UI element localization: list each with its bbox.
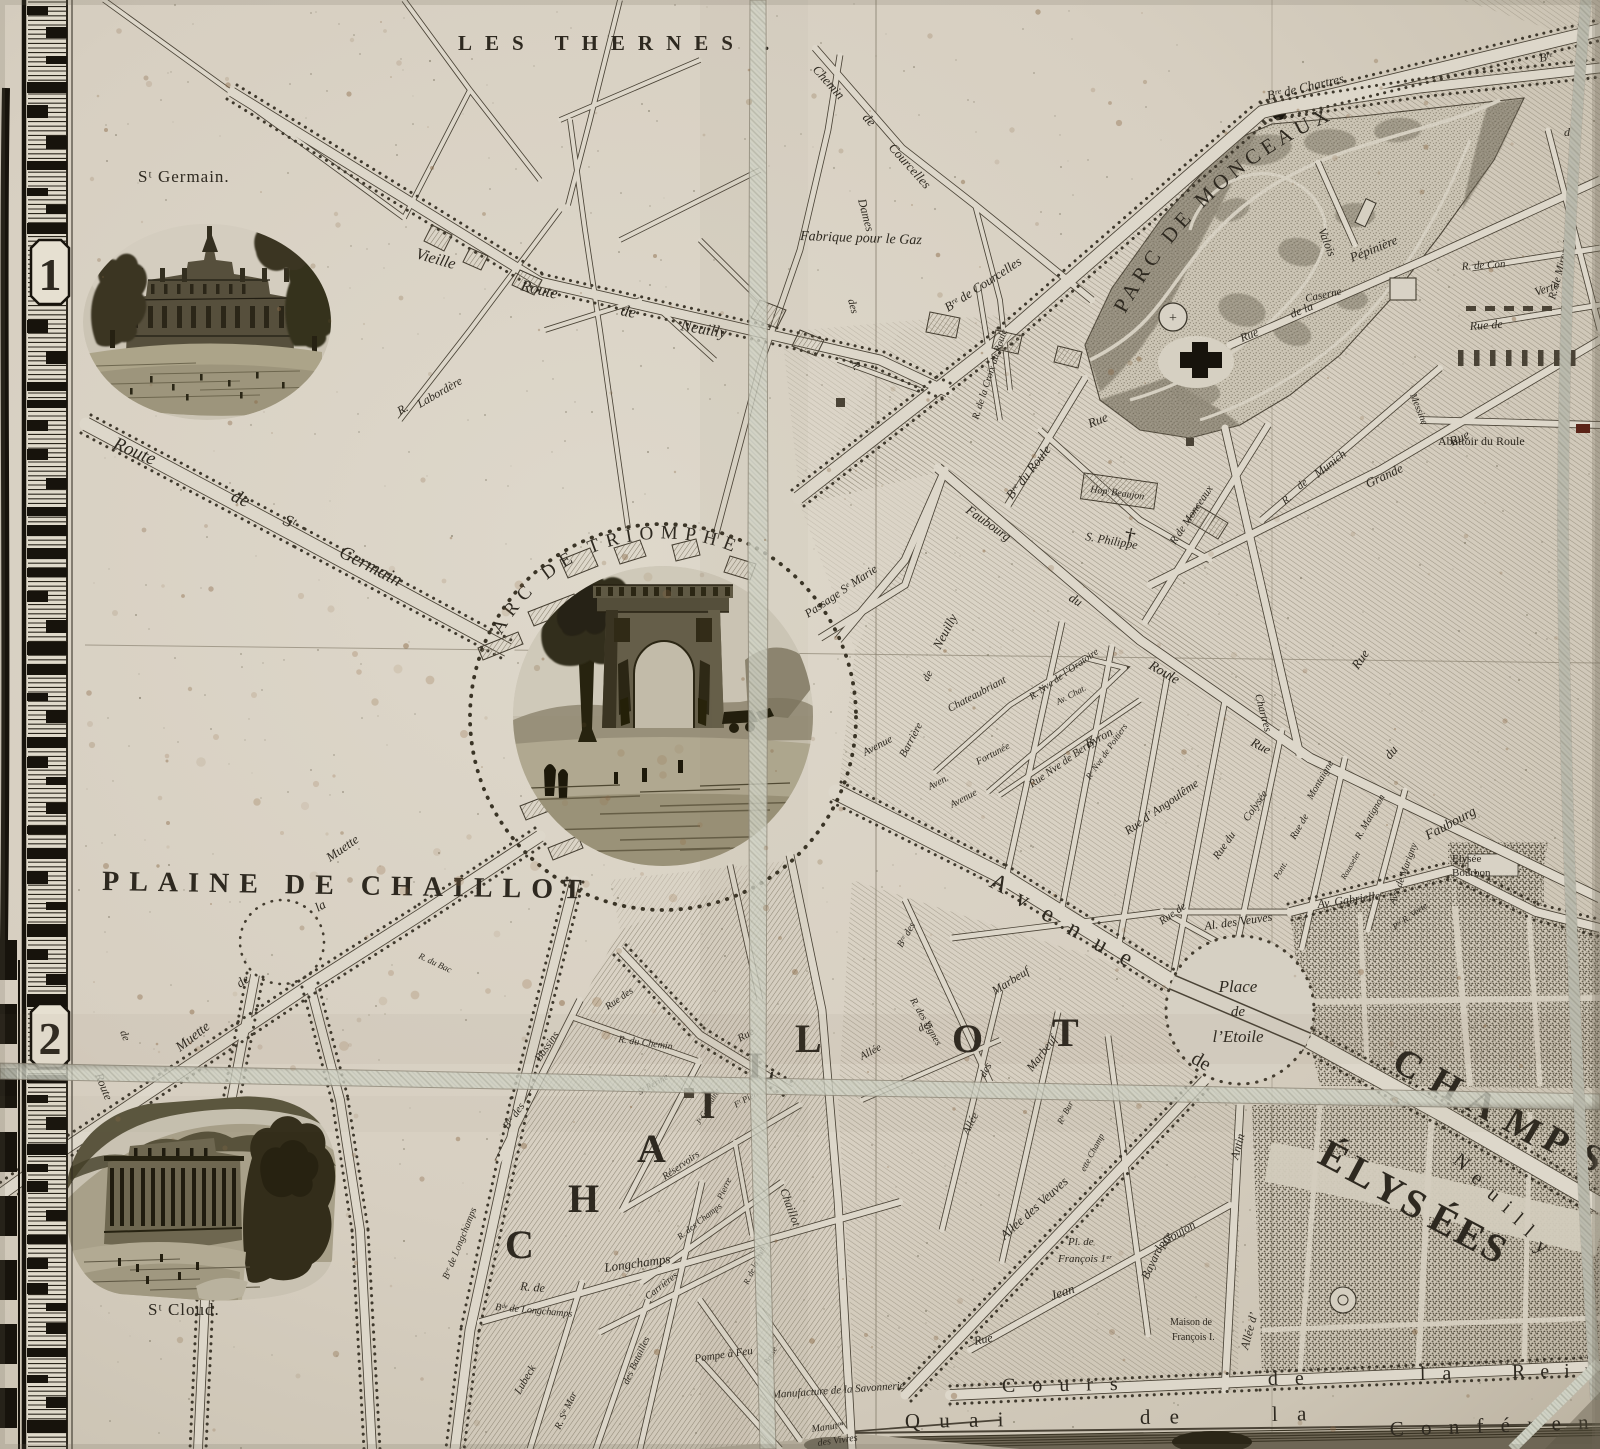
svg-text:Pl. de: Pl. de [1067,1236,1094,1248]
svg-text:1: 1 [39,249,62,300]
svg-text:l a: l a [1420,1362,1458,1385]
svg-text:Sᵗ Germain.: Sᵗ Germain. [138,167,230,186]
svg-text:Maison de: Maison de [1170,1317,1213,1328]
svg-text:François I.: François I. [1172,1332,1215,1343]
svg-text:d e: d e [1140,1404,1186,1429]
svg-text:Q u a i: Q u a i [905,1407,1011,1433]
svg-text:Rue de: Rue de [1468,317,1504,333]
svg-text:François 1ᵉʳ: François 1ᵉʳ [1057,1253,1113,1265]
svg-text:C: C [505,1222,534,1267]
svg-text:+: + [1169,311,1177,326]
svg-text:Bourbon: Bourbon [1452,867,1491,879]
svg-text:Place: Place [1218,977,1258,996]
svg-text:Elysée: Elysée [1452,853,1481,865]
svg-text:A: A [637,1126,666,1171]
svg-text:C o u r s: C o u r s [1002,1373,1124,1397]
svg-text:H: H [568,1176,599,1221]
svg-text:R. de: R. de [519,1279,546,1295]
svg-text:d e: d e [1268,1367,1310,1390]
svg-text:Sᵗ Cloud.: Sᵗ Cloud. [148,1300,220,1319]
svg-text:l a: l a [1272,1401,1314,1426]
